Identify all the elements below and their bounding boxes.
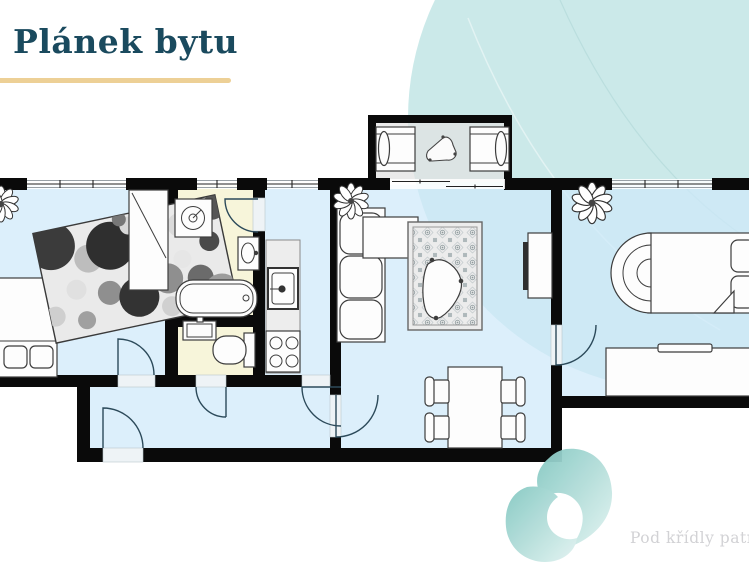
- double-bed-icon: [611, 233, 749, 313]
- dining-table-icon: [448, 367, 502, 448]
- chair-icon: [425, 413, 449, 442]
- footer-caption: Pod křídly patrona n: [630, 529, 749, 547]
- chair-icon: [425, 377, 449, 406]
- bathtub-icon: [176, 280, 257, 317]
- window-icon: [267, 179, 318, 189]
- tv-icon: [523, 242, 528, 290]
- window-icon: [612, 179, 712, 189]
- wc-sink-icon: [183, 317, 216, 340]
- slide: Plánek bytu Pod křídly patrona n: [0, 0, 749, 562]
- wardrobe-icon: [129, 190, 168, 290]
- swirl-logo: [506, 449, 612, 562]
- stove-icon: [266, 331, 300, 372]
- desk-icon: [606, 344, 749, 396]
- floor-plan-image: [0, 0, 749, 562]
- toilet-icon: [213, 333, 255, 367]
- chair-icon: [501, 413, 525, 442]
- bathroom-sink-icon: [238, 237, 259, 270]
- kitchen-sink-icon: [268, 268, 298, 309]
- balcony-sliding-door-icon: [390, 179, 505, 189]
- chair-icon: [501, 377, 525, 406]
- tv-stand-icon: [523, 233, 552, 298]
- sun-lounger-icon: [470, 127, 509, 171]
- page-title: Plánek bytu: [13, 22, 238, 61]
- window-icon: [27, 179, 126, 189]
- kitchen-furniture: [266, 240, 300, 373]
- window-icon: [197, 179, 237, 189]
- sun-lounger-icon: [376, 127, 415, 171]
- washing-machine-icon: [175, 199, 212, 237]
- title-underline-decor: [0, 78, 231, 83]
